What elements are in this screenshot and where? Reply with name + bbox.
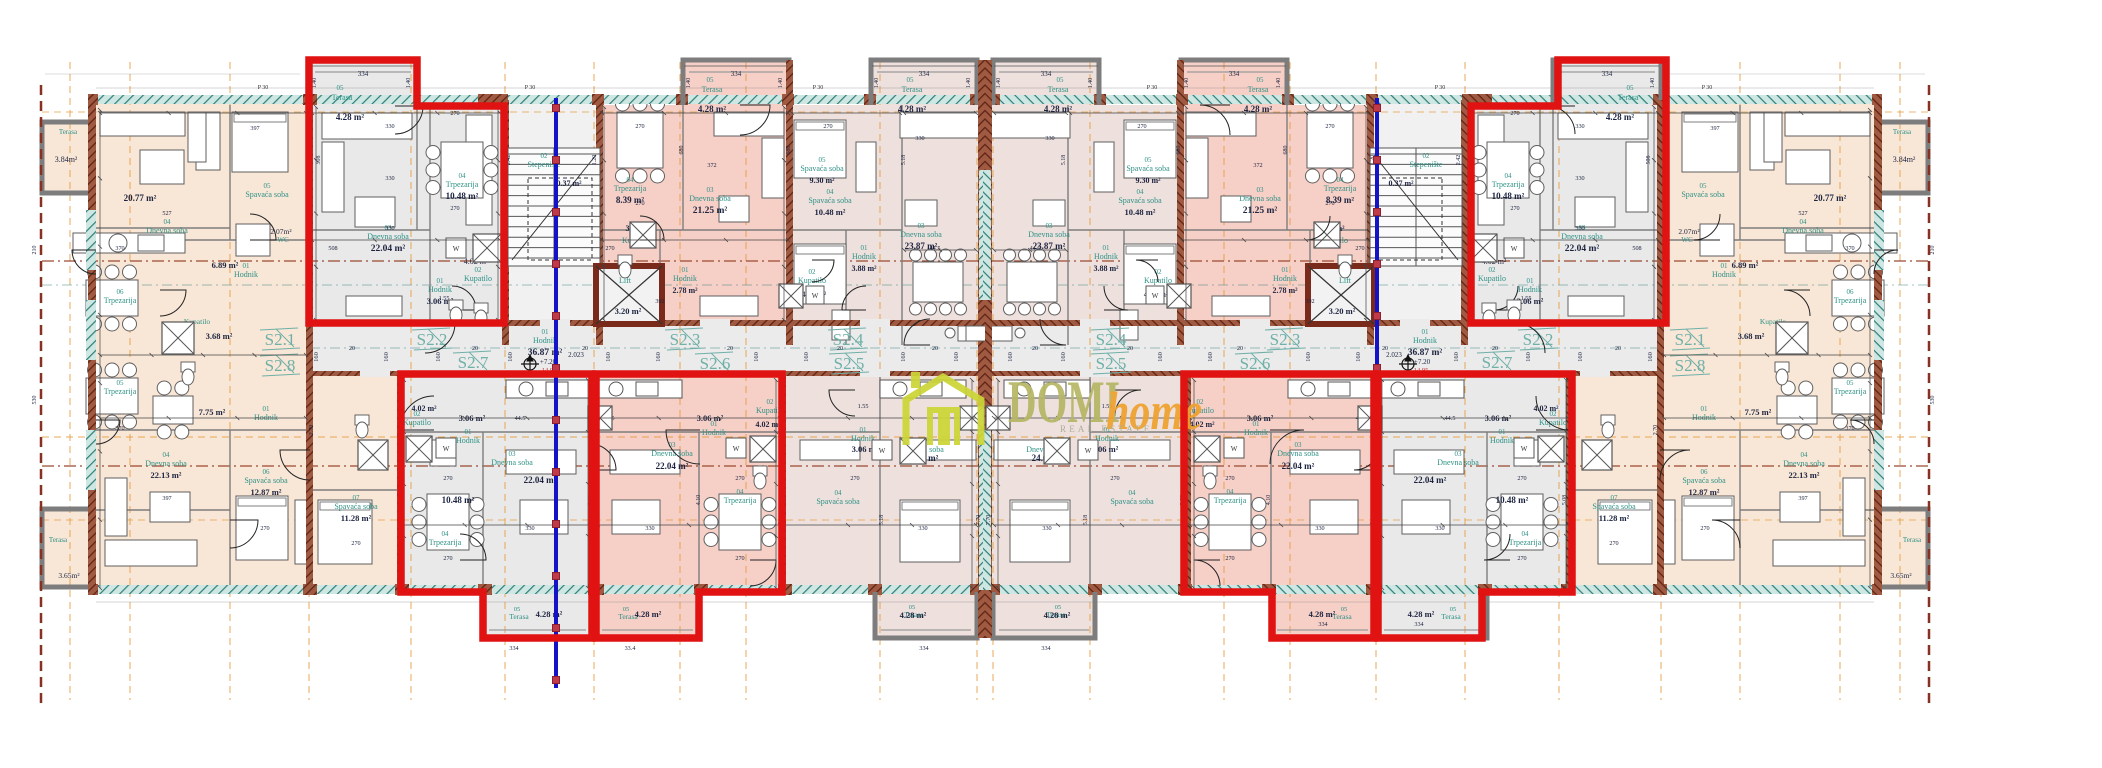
svg-text:372: 372 bbox=[707, 162, 716, 169]
svg-text:370: 370 bbox=[115, 245, 124, 252]
svg-text:01: 01 bbox=[465, 428, 473, 436]
svg-text:10.48 m²: 10.48 m² bbox=[1492, 191, 1525, 201]
svg-text:Trpezarija: Trpezarija bbox=[724, 496, 757, 505]
svg-text:01: 01 bbox=[1282, 266, 1290, 274]
svg-text:1.40: 1.40 bbox=[966, 78, 972, 89]
svg-text:1.55: 1.55 bbox=[1521, 295, 1532, 302]
svg-text:04: 04 bbox=[164, 218, 172, 226]
svg-text:508: 508 bbox=[1646, 156, 1652, 165]
svg-text:2.023: 2.023 bbox=[568, 351, 584, 359]
svg-text:05: 05 bbox=[707, 76, 715, 84]
svg-text:20: 20 bbox=[1615, 346, 1621, 352]
svg-text:03: 03 bbox=[1257, 186, 1265, 194]
svg-text:Hodnik: Hodnik bbox=[673, 274, 697, 283]
svg-text:WC: WC bbox=[1681, 236, 1693, 244]
svg-text:5.18: 5.18 bbox=[1061, 155, 1067, 166]
svg-text:10.48 m²: 10.48 m² bbox=[1125, 207, 1156, 217]
svg-text:Terasa: Terasa bbox=[702, 85, 723, 94]
svg-text:270: 270 bbox=[635, 200, 644, 207]
svg-text:02: 02 bbox=[414, 410, 422, 418]
svg-text:Terasa: Terasa bbox=[49, 536, 68, 544]
svg-text:397: 397 bbox=[1798, 495, 1807, 502]
svg-text:7.75 m²: 7.75 m² bbox=[1745, 407, 1772, 417]
svg-text:160: 160 bbox=[803, 352, 810, 362]
svg-text:W: W bbox=[1085, 447, 1092, 455]
svg-text:530: 530 bbox=[32, 396, 38, 405]
svg-text:270: 270 bbox=[1700, 525, 1709, 532]
svg-text:2.023: 2.023 bbox=[1386, 351, 1402, 359]
svg-text:270: 270 bbox=[1510, 205, 1519, 212]
svg-text:W: W bbox=[879, 447, 886, 455]
svg-text:160: 160 bbox=[900, 352, 907, 362]
svg-text:370: 370 bbox=[115, 425, 124, 432]
svg-text:270: 270 bbox=[850, 475, 859, 482]
svg-text:7.70: 7.70 bbox=[986, 515, 992, 526]
svg-text:44.5: 44.5 bbox=[515, 415, 526, 422]
svg-text:Hodnik: Hodnik bbox=[533, 336, 557, 345]
svg-text:160: 160 bbox=[1647, 352, 1654, 362]
svg-text:Spavaća soba: Spavaća soba bbox=[1681, 190, 1725, 199]
svg-text:3.65m²: 3.65m² bbox=[58, 571, 80, 580]
svg-text:01: 01 bbox=[437, 277, 445, 285]
svg-text:4.28 m²: 4.28 m² bbox=[536, 609, 563, 619]
svg-text:270: 270 bbox=[1137, 123, 1146, 130]
svg-text:5.18: 5.18 bbox=[1083, 515, 1089, 526]
svg-text:04: 04 bbox=[1129, 489, 1137, 497]
svg-text:05: 05 bbox=[117, 379, 125, 387]
svg-text:Hodnik: Hodnik bbox=[1273, 274, 1297, 283]
svg-text:160: 160 bbox=[1305, 352, 1312, 362]
svg-text:P 30: P 30 bbox=[1435, 85, 1446, 91]
svg-text:Spavaća soba: Spavaća soba bbox=[800, 164, 844, 173]
svg-text:270: 270 bbox=[823, 123, 832, 130]
svg-text:1.40: 1.40 bbox=[996, 78, 1002, 89]
svg-text:W: W bbox=[1231, 445, 1238, 453]
svg-text:W: W bbox=[443, 445, 450, 453]
svg-text:05: 05 bbox=[1057, 76, 1065, 84]
svg-text:20: 20 bbox=[472, 346, 478, 352]
svg-text:334: 334 bbox=[358, 70, 369, 78]
svg-text:508: 508 bbox=[328, 245, 337, 252]
svg-text:Dnevna soba: Dnevna soba bbox=[1028, 230, 1070, 239]
svg-text:03: 03 bbox=[1455, 450, 1463, 458]
svg-text:33.4: 33.4 bbox=[625, 645, 636, 652]
svg-text:Dnevna soba: Dnevna soba bbox=[1782, 226, 1824, 235]
svg-text:Terasa: Terasa bbox=[902, 85, 923, 94]
svg-text:1.40: 1.40 bbox=[1088, 78, 1094, 89]
svg-text:04: 04 bbox=[163, 451, 171, 459]
svg-text:22.04 m²: 22.04 m² bbox=[524, 475, 557, 485]
svg-text:160: 160 bbox=[1453, 352, 1460, 362]
svg-text:Trpezarija: Trpezarija bbox=[429, 538, 462, 547]
svg-text:04: 04 bbox=[627, 176, 635, 184]
svg-text:Spavaća soba: Spavaća soba bbox=[1126, 164, 1170, 173]
svg-text:334: 334 bbox=[1229, 70, 1240, 78]
svg-text:330: 330 bbox=[1315, 525, 1324, 532]
svg-text:Hodnik: Hodnik bbox=[1413, 336, 1437, 345]
svg-text:7.70: 7.70 bbox=[976, 515, 982, 526]
svg-text:334: 334 bbox=[1318, 621, 1327, 628]
svg-text:22.13 m²: 22.13 m² bbox=[151, 470, 182, 480]
svg-text:4.28 m²: 4.28 m² bbox=[900, 610, 927, 620]
svg-text:21.25 m²: 21.25 m² bbox=[1243, 206, 1278, 216]
svg-text:P 30: P 30 bbox=[1147, 85, 1158, 91]
svg-text:02: 02 bbox=[809, 268, 817, 276]
svg-text:Trpezarija: Trpezarija bbox=[1492, 180, 1525, 189]
svg-text:9.30 m²: 9.30 m² bbox=[809, 176, 835, 185]
svg-text:20: 20 bbox=[1382, 346, 1388, 352]
svg-text:P 30: P 30 bbox=[258, 85, 269, 91]
svg-text:Dnevna soba: Dnevna soba bbox=[689, 194, 731, 203]
svg-text:160: 160 bbox=[507, 352, 514, 362]
svg-text:160: 160 bbox=[313, 352, 320, 362]
svg-text:04: 04 bbox=[1505, 172, 1513, 180]
svg-text:Spavaća soba: Spavaća soba bbox=[1110, 497, 1154, 506]
svg-text:527: 527 bbox=[1798, 210, 1807, 217]
svg-text:334: 334 bbox=[919, 645, 928, 652]
svg-text:01: 01 bbox=[860, 426, 868, 434]
svg-text:01: 01 bbox=[243, 262, 251, 270]
svg-text:160: 160 bbox=[383, 352, 390, 362]
svg-text:Hodnik: Hodnik bbox=[456, 436, 480, 445]
svg-text:Dnevna soba: Dnevna soba bbox=[1277, 449, 1319, 458]
svg-text:Trpezarija: Trpezarija bbox=[1834, 296, 1867, 305]
svg-text:2.78 m²: 2.78 m² bbox=[672, 286, 698, 295]
svg-text:397: 397 bbox=[250, 125, 259, 132]
svg-text:21.25 m²: 21.25 m² bbox=[693, 206, 728, 216]
svg-text:05: 05 bbox=[1627, 84, 1635, 92]
svg-text:04: 04 bbox=[1137, 188, 1145, 196]
svg-text:Spavaća soba: Spavaća soba bbox=[334, 502, 378, 511]
svg-text:20: 20 bbox=[1237, 346, 1243, 352]
svg-text:+7.20: +7.20 bbox=[1414, 358, 1431, 366]
svg-text:Spavaća soba: Spavaća soba bbox=[1682, 476, 1726, 485]
svg-text:270: 270 bbox=[1110, 475, 1119, 482]
svg-text:4.28 m²: 4.28 m² bbox=[1044, 104, 1072, 114]
svg-text:5.08: 5.08 bbox=[1562, 495, 1568, 506]
svg-text:330: 330 bbox=[1575, 225, 1584, 232]
svg-text:36.87 m²: 36.87 m² bbox=[1408, 348, 1443, 358]
svg-text:11.28 m²: 11.28 m² bbox=[341, 513, 372, 523]
svg-text:270: 270 bbox=[260, 525, 269, 532]
svg-text:Hodnik: Hodnik bbox=[1692, 413, 1716, 422]
svg-text:Terasa: Terasa bbox=[509, 612, 529, 621]
svg-text:334: 334 bbox=[1602, 70, 1613, 78]
svg-text:Trpezarija: Trpezarija bbox=[446, 180, 479, 189]
svg-text:W: W bbox=[1511, 245, 1518, 253]
svg-text:160: 160 bbox=[953, 352, 960, 362]
svg-text:680: 680 bbox=[1283, 146, 1289, 155]
svg-text:334: 334 bbox=[1041, 645, 1050, 652]
svg-text:05: 05 bbox=[1700, 182, 1708, 190]
svg-text:20: 20 bbox=[1492, 346, 1498, 352]
svg-text:2.78 m²: 2.78 m² bbox=[1272, 286, 1298, 295]
svg-text:Stepenište: Stepenište bbox=[1410, 160, 1443, 169]
svg-text:4.28 m²: 4.28 m² bbox=[698, 104, 726, 114]
svg-text:7.75 m²: 7.75 m² bbox=[199, 407, 226, 417]
svg-text:20: 20 bbox=[1127, 346, 1133, 352]
svg-text:Spavaća soba: Spavaća soba bbox=[816, 497, 860, 506]
svg-text:270: 270 bbox=[1510, 110, 1519, 117]
svg-text:Hodnik: Hodnik bbox=[1244, 428, 1268, 437]
svg-text:WC: WC bbox=[277, 236, 289, 244]
svg-text:Trpezarija: Trpezarija bbox=[1324, 184, 1357, 193]
svg-text:20: 20 bbox=[349, 346, 355, 352]
svg-text:01: 01 bbox=[1103, 244, 1111, 252]
svg-text:Hodnik: Hodnik bbox=[1490, 436, 1514, 445]
svg-text:04: 04 bbox=[442, 530, 450, 538]
svg-text:330: 330 bbox=[385, 175, 394, 182]
svg-text:3.88 m²: 3.88 m² bbox=[851, 264, 877, 273]
svg-text:05: 05 bbox=[819, 156, 827, 164]
svg-text:330: 330 bbox=[385, 225, 394, 232]
svg-text:07: 07 bbox=[353, 494, 361, 502]
svg-text:04: 04 bbox=[1800, 218, 1808, 226]
svg-text:P 30: P 30 bbox=[525, 85, 536, 91]
svg-text:Hodnik: Hodnik bbox=[254, 413, 278, 422]
svg-text:01: 01 bbox=[682, 266, 690, 274]
svg-text:03: 03 bbox=[918, 222, 926, 230]
svg-text:2.70: 2.70 bbox=[309, 425, 315, 436]
svg-text:02: 02 bbox=[1550, 410, 1558, 418]
svg-text:06: 06 bbox=[263, 468, 271, 476]
svg-text:160: 160 bbox=[1007, 352, 1014, 362]
svg-text:270: 270 bbox=[1517, 555, 1526, 562]
svg-text:330: 330 bbox=[1042, 525, 1051, 532]
svg-text:1.40: 1.40 bbox=[1650, 78, 1656, 89]
svg-text:9.30 m²: 9.30 m² bbox=[1135, 176, 1161, 185]
svg-text:05: 05 bbox=[337, 84, 345, 92]
svg-text:04: 04 bbox=[835, 489, 843, 497]
svg-text:0.37 m²: 0.37 m² bbox=[1388, 179, 1414, 188]
svg-text:160: 160 bbox=[1525, 352, 1532, 362]
svg-text:270: 270 bbox=[735, 555, 744, 562]
svg-text:Spavaća soba: Spavaća soba bbox=[1592, 502, 1636, 511]
svg-text:05: 05 bbox=[264, 182, 272, 190]
svg-text:680: 680 bbox=[786, 146, 792, 155]
svg-text:397: 397 bbox=[162, 495, 171, 502]
svg-text:02: 02 bbox=[541, 152, 549, 160]
svg-text:334: 334 bbox=[509, 645, 518, 652]
svg-text:04: 04 bbox=[459, 172, 467, 180]
svg-text:22.04 m²: 22.04 m² bbox=[1565, 244, 1600, 254]
svg-text:04: 04 bbox=[1337, 176, 1345, 184]
svg-text:20.77 m²: 20.77 m² bbox=[124, 193, 157, 203]
svg-text:Hodnik: Hodnik bbox=[234, 270, 258, 279]
svg-text:330: 330 bbox=[918, 525, 927, 532]
svg-text:270: 270 bbox=[443, 475, 452, 482]
svg-text:3.68 m²: 3.68 m² bbox=[1738, 331, 1765, 341]
svg-text:01: 01 bbox=[1721, 262, 1729, 270]
svg-text:3.68 m²: 3.68 m² bbox=[206, 331, 233, 341]
svg-text:Trpezarija: Trpezarija bbox=[104, 296, 137, 305]
svg-text:397: 397 bbox=[1710, 125, 1719, 132]
svg-text:06: 06 bbox=[1701, 468, 1709, 476]
svg-text:06: 06 bbox=[1847, 288, 1855, 296]
svg-text:370: 370 bbox=[1845, 425, 1854, 432]
svg-text:44.5: 44.5 bbox=[1445, 415, 1456, 422]
svg-text:Kupatilo: Kupatilo bbox=[464, 274, 492, 283]
svg-text:0.37 m²: 0.37 m² bbox=[556, 179, 582, 188]
svg-text:270: 270 bbox=[735, 475, 744, 482]
svg-text:22.04 m²: 22.04 m² bbox=[1282, 461, 1315, 471]
svg-text:01: 01 bbox=[711, 420, 719, 428]
svg-text:270: 270 bbox=[443, 555, 452, 562]
svg-text:160: 160 bbox=[605, 352, 612, 362]
svg-text:6.89 m²: 6.89 m² bbox=[1732, 260, 1759, 270]
svg-text:04: 04 bbox=[737, 488, 745, 496]
svg-text:Spavaća soba: Spavaća soba bbox=[1118, 196, 1162, 205]
svg-text:330: 330 bbox=[1575, 123, 1584, 130]
svg-text:03: 03 bbox=[707, 186, 715, 194]
svg-text:334: 334 bbox=[731, 70, 742, 78]
svg-text:330: 330 bbox=[645, 525, 654, 532]
svg-text:04: 04 bbox=[1522, 530, 1530, 538]
svg-text:10.48 m²: 10.48 m² bbox=[442, 495, 475, 505]
svg-text:22.04 m²: 22.04 m² bbox=[1414, 475, 1447, 485]
svg-text:1.40: 1.40 bbox=[1184, 78, 1190, 89]
svg-text:4.28 m²: 4.28 m² bbox=[898, 104, 926, 114]
svg-text:01: 01 bbox=[1253, 420, 1261, 428]
svg-text:1.40: 1.40 bbox=[406, 78, 412, 89]
svg-text:334: 334 bbox=[919, 70, 930, 78]
svg-text:Hodnik: Hodnik bbox=[1094, 252, 1118, 261]
svg-text:REAL ESTATE: REAL ESTATE bbox=[1060, 424, 1152, 434]
svg-text:270: 270 bbox=[450, 110, 459, 117]
svg-text:2.42: 2.42 bbox=[1456, 155, 1462, 166]
svg-text:330: 330 bbox=[525, 525, 534, 532]
svg-text:05: 05 bbox=[907, 76, 915, 84]
svg-text:160: 160 bbox=[1207, 352, 1214, 362]
svg-text:330: 330 bbox=[915, 135, 924, 142]
svg-text:11.28 m²: 11.28 m² bbox=[1599, 513, 1630, 523]
svg-text:210: 210 bbox=[32, 246, 38, 255]
svg-text:10.48 m²: 10.48 m² bbox=[446, 191, 479, 201]
svg-text:210: 210 bbox=[1930, 246, 1936, 255]
svg-text:508: 508 bbox=[316, 156, 322, 165]
svg-text:02: 02 bbox=[1489, 266, 1497, 274]
svg-text:Kupatilo: Kupatilo bbox=[1478, 274, 1506, 283]
svg-text:05: 05 bbox=[1145, 156, 1153, 164]
svg-text:334: 334 bbox=[1414, 621, 1423, 628]
svg-text:4.28 m²: 4.28 m² bbox=[1244, 104, 1272, 114]
svg-text:5.18: 5.18 bbox=[879, 515, 885, 526]
svg-text:4.28 m²: 4.28 m² bbox=[1044, 610, 1071, 620]
svg-text:Dnevna soba: Dnevna soba bbox=[146, 226, 188, 235]
svg-text:270: 270 bbox=[450, 205, 459, 212]
svg-text:Trpezarija: Trpezarija bbox=[104, 387, 137, 396]
svg-text:20: 20 bbox=[837, 346, 843, 352]
svg-text:4.28 m²: 4.28 m² bbox=[1309, 609, 1336, 619]
svg-text:4.28 m²: 4.28 m² bbox=[1606, 112, 1634, 122]
svg-text:W: W bbox=[812, 292, 819, 300]
svg-text:02: 02 bbox=[1423, 152, 1431, 160]
svg-text:160: 160 bbox=[1157, 352, 1164, 362]
svg-text:20: 20 bbox=[582, 346, 588, 352]
svg-text:2.07m²: 2.07m² bbox=[1678, 227, 1700, 236]
svg-text:05: 05 bbox=[1847, 379, 1855, 387]
svg-text:160: 160 bbox=[1355, 352, 1362, 362]
svg-text:Terasa: Terasa bbox=[1248, 85, 1269, 94]
svg-text:270: 270 bbox=[1325, 123, 1334, 130]
svg-text:4.10: 4.10 bbox=[696, 495, 702, 506]
svg-text:1.40: 1.40 bbox=[874, 78, 880, 89]
svg-text:Terasa: Terasa bbox=[1048, 85, 1069, 94]
svg-text:Hodnik: Hodnik bbox=[851, 434, 875, 443]
svg-text:3.84m²: 3.84m² bbox=[55, 155, 78, 164]
svg-text:Dnevna soba: Dnevna soba bbox=[1437, 458, 1479, 467]
svg-text:160: 160 bbox=[435, 352, 442, 362]
svg-text:10.48 m²: 10.48 m² bbox=[1496, 495, 1529, 505]
svg-text:270: 270 bbox=[1325, 200, 1334, 207]
svg-text:Dnevna soba: Dnevna soba bbox=[1239, 194, 1281, 203]
svg-text:03: 03 bbox=[509, 450, 517, 458]
svg-text:01: 01 bbox=[861, 244, 869, 252]
svg-text:Dnevna soba: Dnevna soba bbox=[491, 458, 533, 467]
svg-text:04: 04 bbox=[1801, 451, 1809, 459]
svg-text:370: 370 bbox=[1845, 245, 1854, 252]
svg-text:02: 02 bbox=[767, 398, 775, 406]
svg-text:W: W bbox=[453, 245, 460, 253]
svg-text:22.04 m²: 22.04 m² bbox=[656, 461, 689, 471]
svg-text:1.55: 1.55 bbox=[858, 403, 869, 410]
svg-text:270: 270 bbox=[1225, 475, 1234, 482]
svg-text:12.87 m²: 12.87 m² bbox=[251, 487, 282, 497]
svg-text:270: 270 bbox=[351, 540, 360, 547]
svg-text:270: 270 bbox=[1225, 555, 1234, 562]
svg-text:4.02 m²: 4.02 m² bbox=[755, 420, 781, 429]
svg-text:Hodnik: Hodnik bbox=[428, 285, 452, 294]
svg-text:02: 02 bbox=[475, 266, 483, 274]
svg-text:1.40: 1.40 bbox=[686, 78, 692, 89]
svg-text:392: 392 bbox=[1305, 298, 1314, 305]
svg-text:03: 03 bbox=[1295, 441, 1303, 449]
svg-text:527: 527 bbox=[162, 210, 171, 217]
svg-text:Hodnik: Hodnik bbox=[702, 428, 726, 437]
svg-text:1.40: 1.40 bbox=[778, 78, 784, 89]
svg-text:330: 330 bbox=[385, 123, 394, 130]
svg-text:334: 334 bbox=[1041, 70, 1052, 78]
svg-text:508: 508 bbox=[1632, 245, 1641, 252]
svg-text:270: 270 bbox=[1517, 475, 1526, 482]
svg-text:Spavaća soba: Spavaća soba bbox=[245, 190, 289, 199]
svg-text:1.40: 1.40 bbox=[1276, 78, 1282, 89]
svg-text:3.20 m²: 3.20 m² bbox=[615, 306, 642, 316]
svg-text:3.65m²: 3.65m² bbox=[1890, 571, 1912, 580]
svg-text:270: 270 bbox=[635, 123, 644, 130]
svg-text:680: 680 bbox=[1176, 146, 1182, 155]
svg-text:22.04 m²: 22.04 m² bbox=[371, 244, 406, 254]
svg-text:2.70: 2.70 bbox=[1653, 425, 1659, 436]
svg-text:Dnevna soba: Dnevna soba bbox=[900, 230, 942, 239]
svg-text:03: 03 bbox=[1046, 222, 1054, 230]
svg-text:160: 160 bbox=[655, 352, 662, 362]
svg-text:01: 01 bbox=[1422, 328, 1430, 336]
svg-text:04: 04 bbox=[827, 188, 835, 196]
svg-text:W: W bbox=[1521, 445, 1528, 453]
svg-text:04: 04 bbox=[1227, 488, 1235, 496]
svg-text:P 30: P 30 bbox=[813, 85, 824, 91]
svg-text:Trpezarija: Trpezarija bbox=[1214, 496, 1247, 505]
svg-text:01: 01 bbox=[1499, 428, 1507, 436]
svg-text:12.87 m²: 12.87 m² bbox=[1689, 487, 1720, 497]
svg-text:4.10: 4.10 bbox=[1266, 495, 1272, 506]
svg-text:22.13 m²: 22.13 m² bbox=[1789, 470, 1820, 480]
svg-text:01: 01 bbox=[1527, 277, 1535, 285]
svg-text:530: 530 bbox=[1930, 396, 1936, 405]
svg-text:6.89 m²: 6.89 m² bbox=[212, 260, 239, 270]
svg-text:20: 20 bbox=[932, 346, 938, 352]
